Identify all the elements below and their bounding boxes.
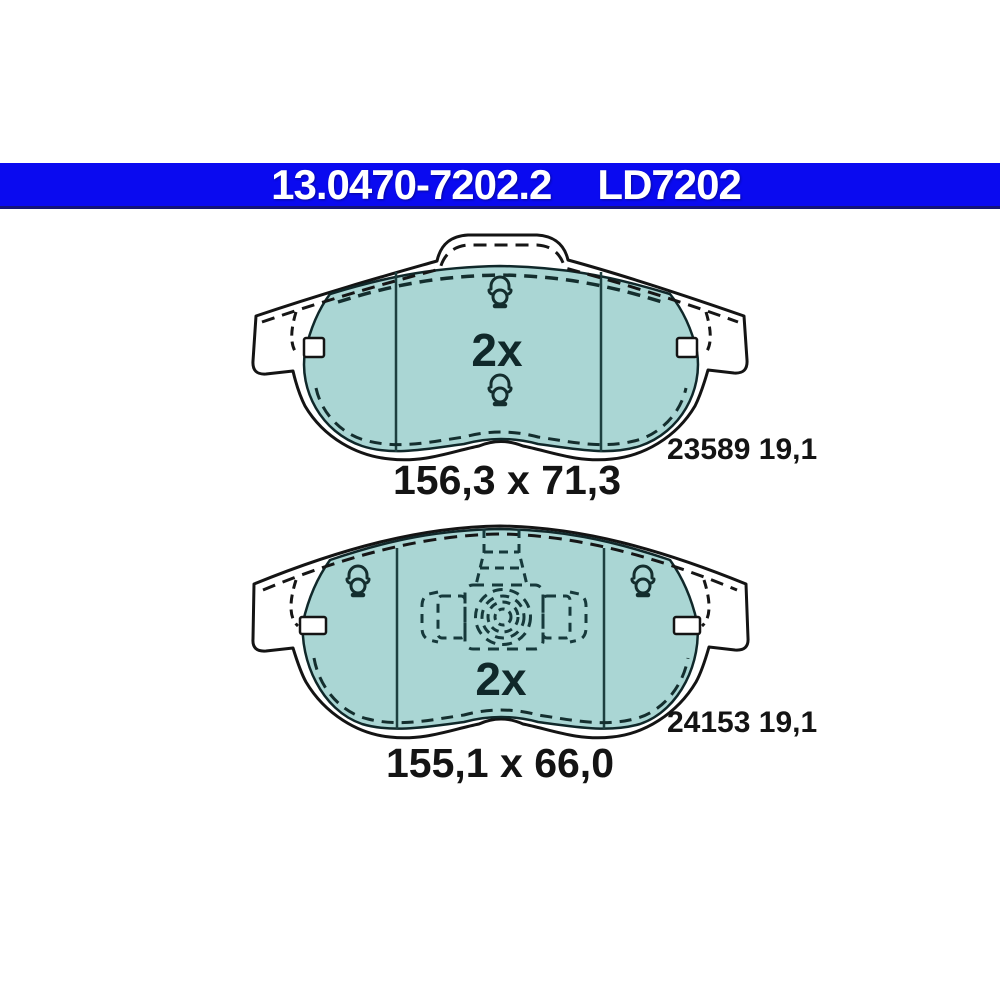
product-image: 13.0470-7202.2 LD7202 (0, 0, 1000, 1000)
quantity-label-lower: 2x (475, 656, 526, 702)
quantity-label-upper: 2x (471, 327, 522, 373)
abutment-lug-right (677, 338, 697, 357)
wva-thickness-label-lower: 24153 19,1 (667, 708, 817, 738)
wva-thickness-label-upper: 23589 19,1 (667, 435, 817, 465)
abutment-lug-right (674, 617, 700, 634)
dimensions-label-lower: 155,1 x 66,0 (386, 743, 614, 784)
abutment-lug-left (300, 617, 326, 634)
dimensions-label-upper: 156,3 x 71,3 (393, 460, 621, 501)
abutment-lug-left (304, 338, 324, 357)
